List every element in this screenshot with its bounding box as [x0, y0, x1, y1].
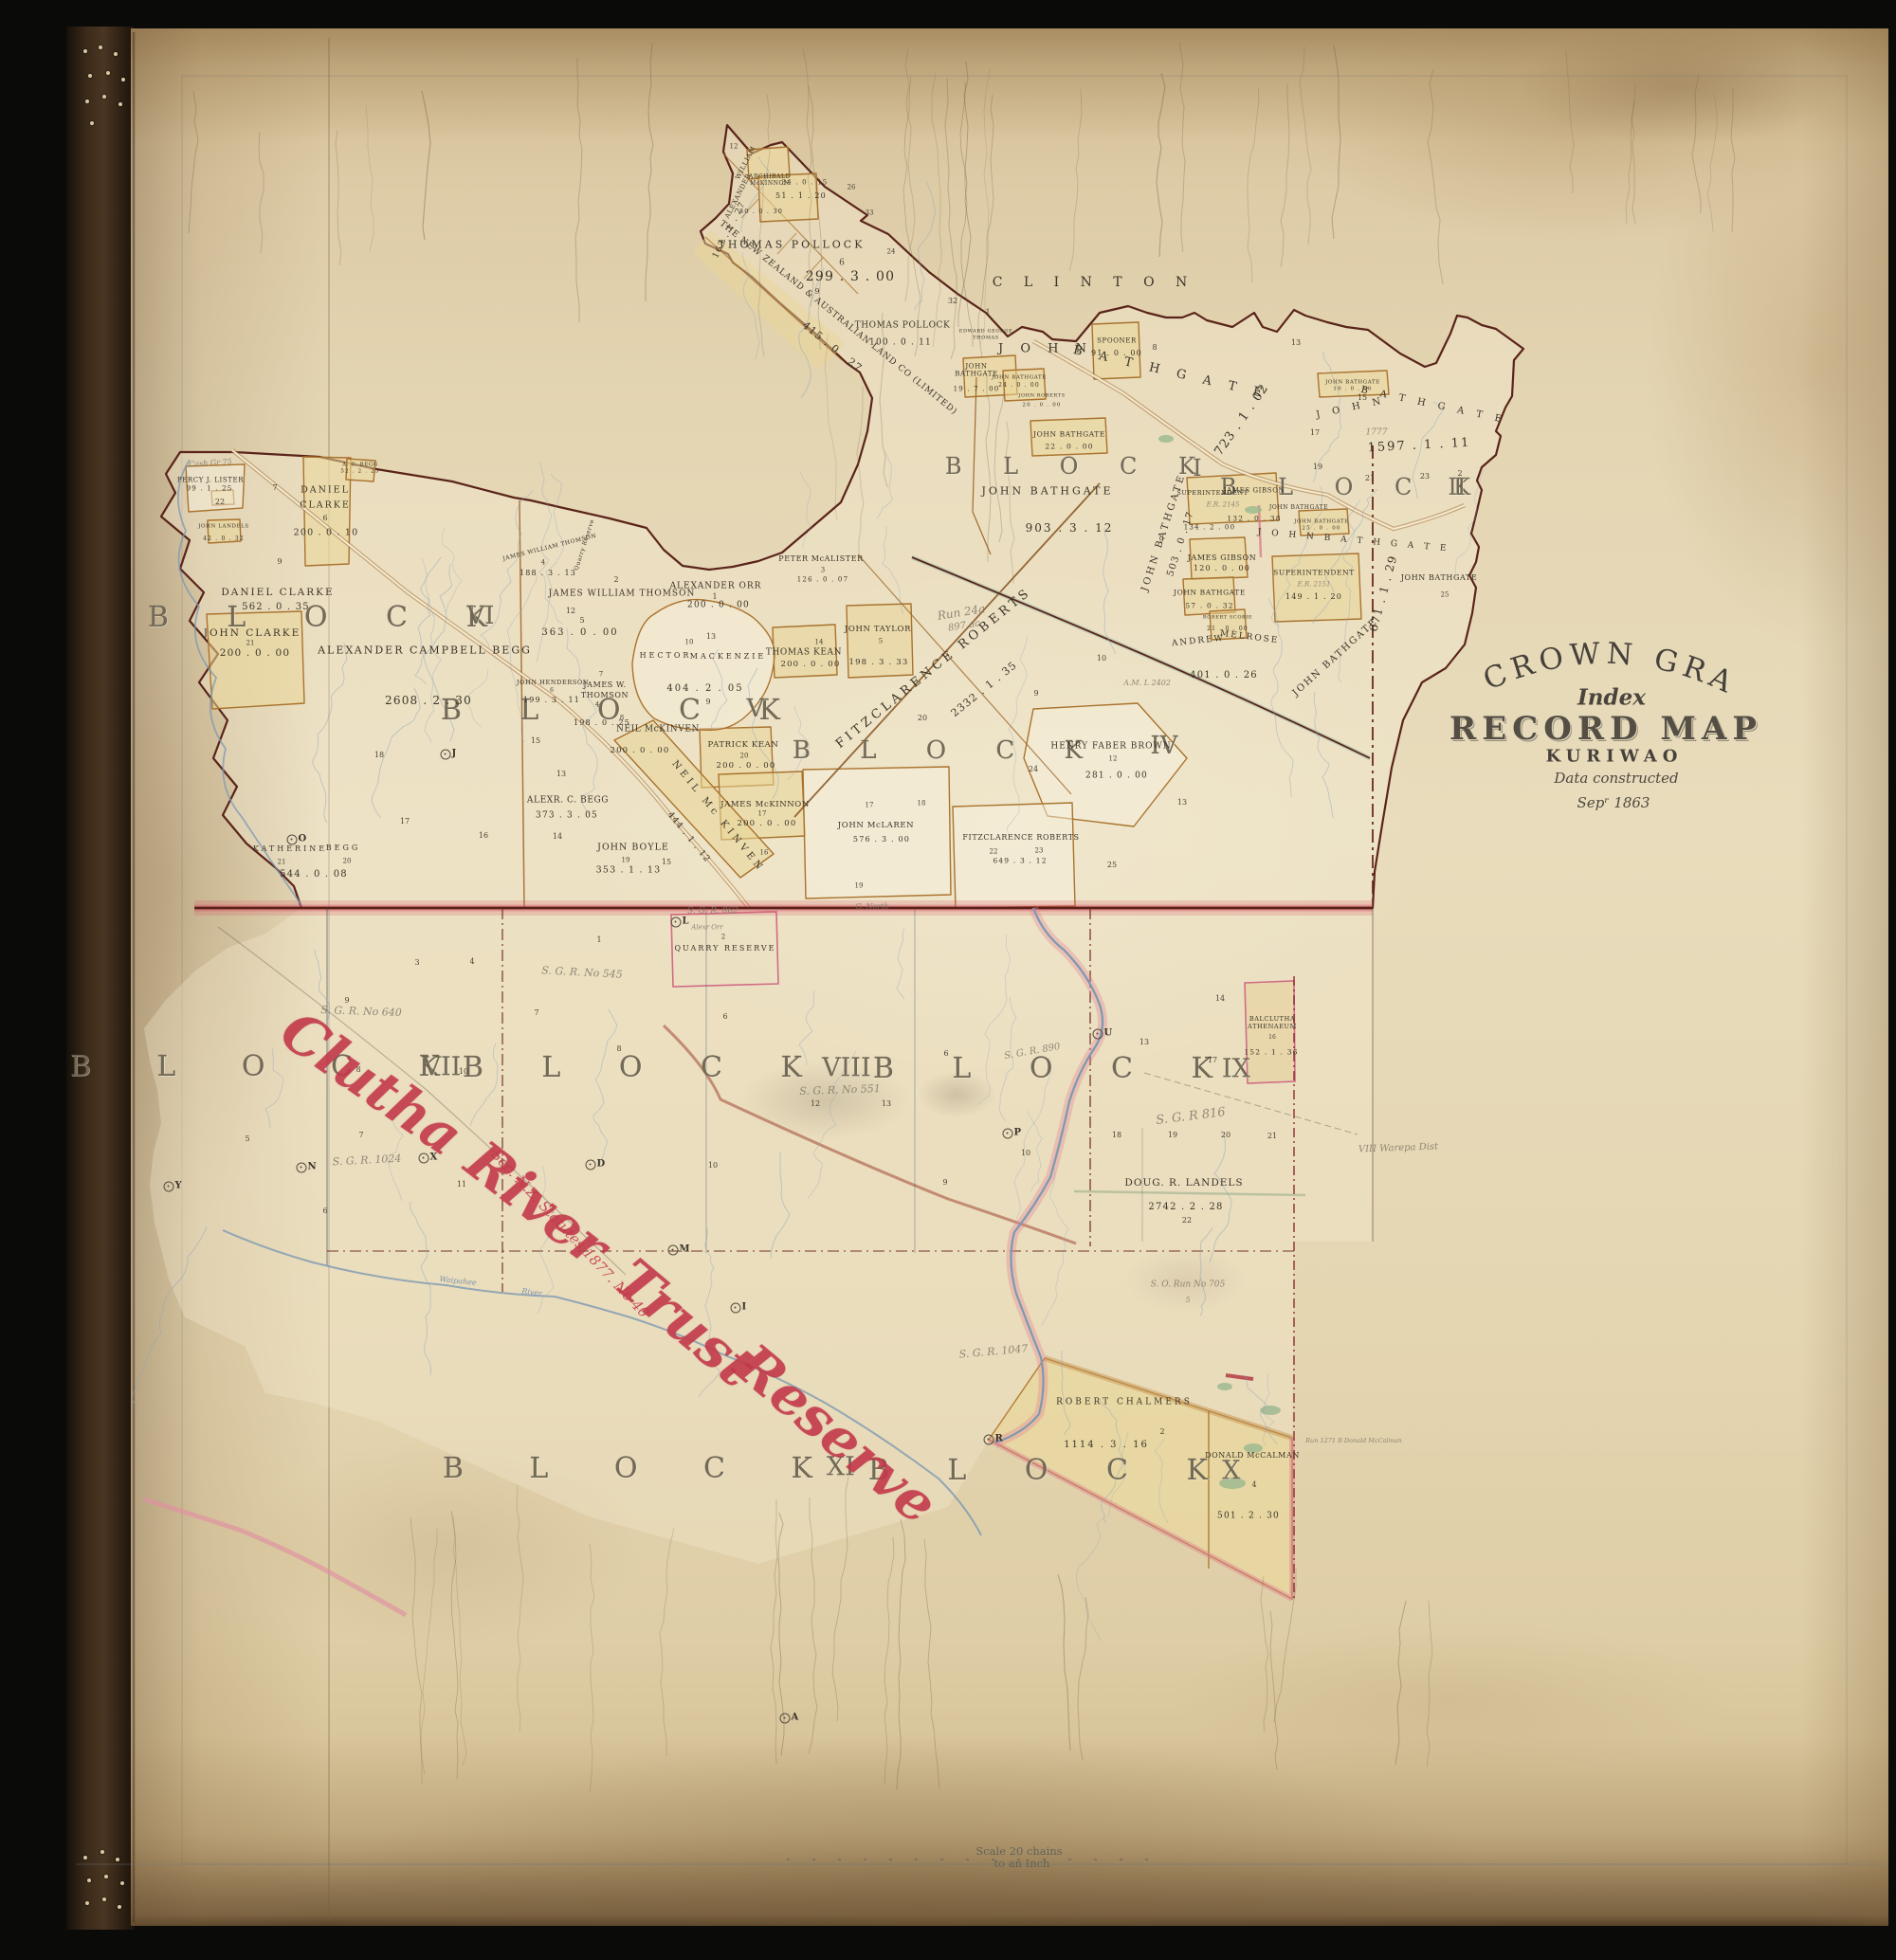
map-label: 91 . 0 . 00 — [1091, 350, 1142, 357]
map-label: Clutha — [272, 1002, 472, 1165]
map-label: PATRICK KEAN — [708, 741, 779, 750]
map-label: IX — [1222, 1057, 1250, 1082]
map-label: PERCY J. LISTER — [177, 478, 244, 484]
map-label: QUARRY RESERVE — [675, 945, 776, 953]
stitch-hole — [87, 1878, 91, 1882]
map-label: 26 — [848, 185, 856, 191]
map-label: 2332 . 1 . 35 — [949, 660, 1018, 718]
map-label: 7 — [599, 672, 603, 679]
map-label: VIII Warepa Dist — [1358, 1143, 1439, 1155]
map-label: S. O. Run No 705 — [1151, 1281, 1226, 1290]
map-label: 1 — [985, 309, 990, 317]
trig-point-M: M — [668, 1245, 679, 1256]
map-label: JAMES GIBSON — [1224, 488, 1285, 495]
map-label: Sec. N.Z. Statutes 1877. No 40 — [488, 1148, 651, 1321]
map-label: B L O C K — [873, 1055, 1237, 1083]
map-label: C L I N T O N — [993, 276, 1196, 289]
map-label: 17 — [758, 811, 767, 818]
stitch-hole — [85, 100, 89, 103]
map-label: 22 — [990, 849, 998, 856]
map-label: Cash Gr 75 — [189, 458, 232, 468]
map-label: S. G. R. No 551 — [799, 1083, 881, 1097]
map-labels-layer: C L I N T O NB L O C KVIB L O C KVB L O … — [0, 0, 1896, 1960]
map-label: 6 — [943, 1050, 948, 1058]
map-title-record: RECORD MAP — [1449, 710, 1762, 748]
map-label: Waipahee — [439, 1276, 477, 1287]
map-label: 20 — [918, 715, 927, 722]
map-label: 13 — [882, 1100, 891, 1108]
map-label: 8 — [616, 1045, 621, 1053]
map-label: 25 — [1107, 862, 1117, 869]
trig-point-D: D — [586, 1160, 596, 1171]
stitch-hole — [116, 1858, 119, 1861]
stitch-hole — [114, 52, 118, 56]
map-label: NEIL McKINVEN — [616, 726, 700, 735]
map-label: JOHN BATHGATE — [982, 486, 1114, 497]
map-label: 8 — [1152, 344, 1157, 352]
map-label: 15 — [662, 859, 671, 866]
map-label: 903 . 3 . 12 — [1026, 522, 1114, 534]
map-label: BEGG — [326, 844, 361, 852]
map-label: 4 — [1251, 1481, 1256, 1489]
map-label: Reserve — [725, 1335, 946, 1534]
map-label: 6 — [839, 260, 845, 268]
stitch-hole — [121, 78, 125, 82]
map-label: NEIL Mc KINVEN — [669, 759, 765, 875]
map-label: B L O C K — [443, 1455, 841, 1483]
map-label: 17 — [866, 803, 874, 809]
map-label: I — [1193, 457, 1201, 480]
map-label: 2742 . 2 . 28 — [1148, 1203, 1223, 1212]
stitch-hole — [120, 1881, 124, 1885]
map-label: 120 . 0 . 00 — [1194, 565, 1250, 572]
map-label: A.M. L 2402 — [1123, 680, 1171, 687]
map-label: 12 — [1109, 756, 1118, 763]
map-label: 13 — [556, 771, 566, 778]
map-label: ROBERT CHALMERS — [1056, 1399, 1193, 1407]
map-label: 501 . 2 . 30 — [1217, 1513, 1280, 1521]
map-label: 10 — [1097, 655, 1106, 662]
map-label: 444 . 1 . 12 — [665, 811, 711, 865]
map-label: ROBERT SCOBIE — [1203, 616, 1252, 621]
map-label: JOHN BOYLE — [597, 843, 669, 852]
map-label: 6 — [322, 515, 327, 522]
map-label: VII — [423, 1055, 462, 1080]
map-label: 19 . 7 . 00 — [954, 387, 1000, 393]
map-label: 576 . 3 . 00 — [853, 836, 910, 844]
map-label: 200 . 0 . 00 — [780, 661, 840, 669]
map-label: DANIEL — [301, 485, 350, 495]
map-label: PETER McALISTER — [778, 555, 864, 563]
map-label: JOHN BATHGATE — [1401, 574, 1478, 582]
map-label: Quarry Reserve — [574, 518, 595, 571]
map-label: MELROSE — [1219, 630, 1279, 646]
map-label: 200 . 0 . 00 — [220, 648, 291, 659]
map-label: 9 — [344, 997, 349, 1005]
map-label: MACKENZIE — [690, 653, 766, 661]
trig-point-O: O — [287, 835, 298, 845]
map-label: JOHN TAYLOR — [845, 626, 911, 634]
map-label: 32 — [948, 298, 957, 305]
map-label: 152 . 1 . 36 — [1244, 1048, 1298, 1056]
map-label: 3 — [414, 959, 419, 967]
map-label: 401 . 0 . 26 — [1190, 671, 1258, 681]
map-label: JOHN CLARKE — [204, 628, 301, 639]
map-label: JOHN BATHGATE — [1294, 519, 1349, 525]
map-label: 21 — [1267, 1133, 1277, 1140]
map-label: G. North — [855, 903, 888, 911]
map-label: JOHN — [965, 364, 987, 371]
map-label: ANDREW — [1172, 635, 1226, 649]
map-label: 20 — [740, 753, 749, 760]
map-label: 24 . 0 . 00 — [998, 383, 1040, 389]
map-label: 373 . 3 . 05 — [536, 812, 598, 821]
map-label: 1 — [596, 936, 601, 944]
map-label: 42 . 0 . 32 — [203, 536, 245, 542]
map-label: B L O C K — [463, 1054, 827, 1082]
map-label: 200 . 0 . 00 — [687, 602, 750, 610]
map-label: 353 . 1 . 13 — [596, 865, 662, 875]
trig-point-P: P — [1003, 1129, 1013, 1139]
map-label: DANIEL CLARKE — [221, 588, 334, 598]
map-label: 15 — [531, 737, 540, 745]
stitch-hole — [102, 1897, 106, 1901]
trig-point-U: U — [1093, 1029, 1103, 1040]
scanned-map-photo: CROWN GRANT C L I N T O NB L O C KVIB L … — [0, 0, 1896, 1960]
map-label: 2 — [613, 576, 618, 584]
map-label: 1777 — [1366, 429, 1388, 438]
map-label: 2 — [1457, 470, 1462, 478]
map-label: 3 — [821, 568, 825, 574]
map-label: BALCLUTHA — [1249, 1016, 1295, 1023]
map-label: JOHN BATHGATE — [1269, 505, 1328, 511]
stitch-hole — [88, 74, 92, 78]
map-label: 33 — [866, 210, 874, 217]
map-label: 100 . 0 . 11 — [869, 339, 932, 348]
map-label: 7 — [272, 484, 277, 492]
map-label: 14 — [815, 640, 824, 646]
map-label: 17 — [400, 818, 410, 826]
map-label: 7 — [534, 1009, 538, 1017]
stitch-hole — [83, 49, 87, 53]
trig-point-Y: Y — [164, 1182, 174, 1192]
map-label: 5 — [1185, 1297, 1190, 1304]
map-label: VIII — [822, 1056, 871, 1081]
scale-line2: to an Inch — [994, 1857, 1050, 1870]
map-label: 52 . 2 . 25 — [340, 469, 379, 475]
trig-point-I: I — [731, 1303, 741, 1314]
map-label: 199 . 3 . 11 — [523, 697, 580, 704]
map-label: 9 — [277, 558, 282, 566]
map-label: 562 . 0 . 35 — [242, 603, 310, 612]
map-label: 12 — [730, 144, 738, 151]
map-label: X — [1222, 1459, 1240, 1484]
map-label: 25 . 0 . 00 — [1302, 526, 1340, 532]
map-label: 21 — [1365, 475, 1375, 482]
map-label: THOMSON — [581, 692, 629, 699]
stitch-hole — [118, 102, 122, 106]
map-label: 22 . 0 . 00 — [1045, 443, 1093, 450]
map-label: 1114 . 3 . 16 — [1064, 1441, 1149, 1450]
map-label: JOHN BATHGATE — [1174, 589, 1246, 596]
map-label: J O H N B A T H G A T E — [1257, 529, 1449, 554]
map-label: 281 . 0 . 00 — [1085, 772, 1148, 781]
map-label: 18 — [1112, 1132, 1121, 1139]
map-label: 200 . 0 . 00 — [716, 762, 775, 771]
map-label: JOHN BATHGATE — [1325, 380, 1380, 386]
stitch-hole — [106, 71, 110, 75]
map-label: FITZCLARENCE ROBERTS — [962, 834, 1079, 842]
map-label: 6 — [722, 1013, 727, 1021]
map-label: 9 — [1158, 536, 1163, 544]
map-label: 200 . 0 . 00 — [610, 747, 669, 755]
trig-point-X: X — [419, 1153, 429, 1164]
map-label: 16 — [760, 850, 769, 857]
map-label: HECTOR — [640, 652, 692, 660]
map-title-district: KURIWAO — [1546, 747, 1684, 767]
map-label: JOHN BATHGATE — [1033, 430, 1105, 438]
map-label: 23 — [1420, 473, 1430, 481]
map-label: 12 — [566, 608, 575, 615]
map-label: 4 — [469, 958, 474, 966]
map-label: 299 . 3 . 00 — [806, 270, 896, 283]
map-label: SUPERINTENDENT — [1273, 569, 1355, 576]
map-label: S. G. R. No 545 — [541, 965, 623, 979]
map-label: 19 — [855, 883, 864, 890]
map-label: 20 — [343, 859, 352, 865]
stitch-hole — [100, 1850, 104, 1854]
map-label: ATHENAEUM — [1248, 1024, 1297, 1030]
map-label: 19 — [1313, 463, 1322, 471]
map-label: J O H N — [1316, 396, 1387, 420]
map-label: 149 . 1 . 20 — [1285, 593, 1342, 601]
map-label: 363 . 0 . 00 — [541, 628, 618, 638]
map-label: B L O C K — [148, 604, 512, 632]
map-label: 6 — [550, 688, 554, 694]
map-label: JOHN BATHGATE — [1291, 617, 1380, 699]
map-label: 5 — [879, 639, 883, 645]
map-label: 16 — [1268, 1035, 1276, 1041]
map-label: 23 — [1035, 848, 1044, 855]
map-label: E.R. 2151 — [1298, 582, 1331, 589]
map-label: 6 — [322, 1207, 327, 1215]
map-label: 544 . 0 . 08 — [280, 870, 348, 880]
map-label: 24 — [1029, 766, 1038, 773]
map-label: 21 — [246, 641, 255, 647]
map-label: 132 . 0 . 38 — [1227, 515, 1281, 522]
map-label: JOHN McLAREN — [838, 822, 914, 830]
map-label: 18 — [918, 801, 926, 808]
stitch-hole — [104, 1875, 108, 1878]
stitch-hole — [90, 121, 94, 125]
map-label: 13 — [706, 633, 716, 641]
map-label: JAMES WILLIAM THOMSON — [549, 590, 696, 599]
map-label: A. C. BEGG — [342, 463, 378, 468]
map-label: 34 . 0 . 15 — [782, 180, 829, 187]
map-label: JOHN HENDERSON — [517, 680, 589, 686]
map-label: SPOONER — [1097, 338, 1137, 345]
map-label: EDWARD GEORGE — [959, 330, 1012, 335]
stitch-hole — [118, 1905, 121, 1909]
map-label: JAMES W. — [583, 681, 626, 689]
trig-point-R: R — [984, 1435, 994, 1445]
map-label: S. G. R. 862 — [687, 908, 738, 916]
map-label: DONALD McCALMAN — [1205, 1452, 1300, 1460]
map-label: 10 — [685, 640, 694, 646]
scale-line1: Scale 20 chains — [975, 1844, 1062, 1858]
map-label: JOHN BATHGATE — [992, 375, 1047, 381]
map-label: 4 — [541, 560, 545, 567]
map-label: 22 — [1182, 1217, 1192, 1225]
map-label: 5 — [579, 617, 584, 625]
map-label: 5 — [245, 1135, 249, 1143]
trig-point-A: A — [780, 1714, 791, 1724]
map-label: 17 — [1310, 429, 1320, 437]
map-label: S. G. R. 1047 — [958, 1343, 1028, 1359]
map-label: B L O C K — [945, 455, 1212, 478]
map-label: ALEXANDER CAMPBELL BEGG — [318, 645, 532, 656]
trig-point-N: N — [297, 1163, 307, 1173]
map-label: THOMAS POLLOCK — [855, 322, 951, 331]
stitch-hole — [85, 1901, 89, 1905]
map-label: 2608 . 2 . 30 — [385, 695, 472, 706]
map-label: 22 — [215, 499, 225, 506]
map-label: 4 — [595, 702, 599, 709]
map-label: 649 . 3 . 12 — [993, 857, 1047, 864]
map-label: 200 . 0 . 10 — [294, 528, 359, 537]
map-label: 9 — [1033, 690, 1038, 698]
map-label: River — [521, 1288, 543, 1298]
map-label: 200 . 0 . 00 — [737, 820, 796, 828]
stitch-hole — [83, 1856, 87, 1860]
map-label: 57 . 0 . 32 — [1185, 602, 1233, 609]
map-label: E.R. 2145 — [1207, 502, 1240, 509]
map-label: 16 — [479, 832, 488, 840]
map-label: 51 . 1 . 20 — [775, 192, 827, 200]
map-label: S. G. R. 1024 — [332, 1153, 401, 1168]
map-label: Run 1271 B Donald McCalman — [1305, 1438, 1402, 1444]
map-label: S. G. R 816 — [1156, 1106, 1227, 1127]
map-label: 10 — [708, 1162, 718, 1170]
map-label: THOMAS KEAN — [766, 649, 842, 658]
map-label: 21 — [278, 860, 286, 866]
map-title-date: Sepʳ 1863 — [1577, 794, 1650, 811]
map-label: 9 — [942, 1179, 947, 1187]
map-label: 19 — [1168, 1132, 1177, 1139]
map-label: 9 — [705, 699, 710, 706]
map-label: CLARKE — [300, 500, 351, 510]
map-label: 10 — [459, 1068, 468, 1076]
map-label: JAMES GIBSON — [1188, 554, 1257, 562]
map-label: 14 — [553, 833, 562, 841]
map-label: ALEXR. C. BEGG — [527, 797, 609, 806]
map-label: JOHN LANDELS — [198, 524, 249, 530]
map-label: 20 — [1221, 1132, 1231, 1139]
map-label: 8 — [620, 716, 624, 722]
trig-point-J: J — [441, 750, 451, 760]
map-label: 2 — [721, 935, 725, 941]
map-label: 7 — [358, 1132, 363, 1139]
map-label: JAMES McKINNON — [720, 801, 810, 809]
map-label: 15 — [1358, 394, 1367, 402]
map-label: THOMAS — [973, 336, 999, 341]
map-label: II — [1449, 476, 1467, 499]
map-label: 126 . 0 . 07 — [797, 577, 848, 584]
map-title-index: Index — [1577, 685, 1646, 711]
map-label: 99 . 1 . 25 — [187, 486, 233, 493]
map-label: 20 . 0 . 00 — [1022, 403, 1061, 408]
map-label: ALEXANDER ORR — [670, 583, 762, 591]
map-label: 25 — [1441, 592, 1449, 599]
map-label: 18 — [374, 752, 384, 759]
map-label: 10 — [1021, 1150, 1030, 1157]
map-label: KATHERINE — [253, 845, 327, 853]
map-title-note: Data constructed — [1554, 770, 1678, 787]
map-label: Alexr Orr — [691, 925, 722, 932]
map-label: HENRY FABER BROWN — [1050, 743, 1171, 752]
map-label: 13 — [1177, 799, 1187, 807]
map-label: 404 . 2 . 05 — [666, 684, 743, 694]
map-label: 30 . 0 . 30 — [739, 209, 783, 215]
map-label: 188 . 3 . 13 — [520, 570, 576, 577]
map-label: 1597 . 1 . 11 — [1367, 437, 1470, 455]
map-label: 13 — [1139, 1039, 1149, 1046]
trig-point-L: L — [671, 917, 682, 928]
map-label: VI — [466, 604, 494, 628]
map-label: 2 — [1159, 1428, 1164, 1436]
map-label: 24 — [887, 249, 896, 256]
map-label: 14 — [1215, 995, 1225, 1003]
map-label: 13 — [1291, 339, 1301, 347]
map-label: V — [747, 697, 765, 721]
map-label: 17 — [1208, 1057, 1217, 1064]
map-label: 12 — [811, 1100, 820, 1108]
stitch-hole — [102, 95, 106, 99]
map-label: DOUG. R. LANDELS — [1124, 1178, 1243, 1189]
stitch-hole — [99, 45, 102, 49]
map-label: 198 . 3 . 33 — [848, 659, 908, 667]
map-label: 19 — [622, 858, 630, 864]
map-label: JOHN ROBERTS — [1018, 394, 1065, 399]
map-label: 134 . 2 . 00 — [1184, 525, 1235, 532]
